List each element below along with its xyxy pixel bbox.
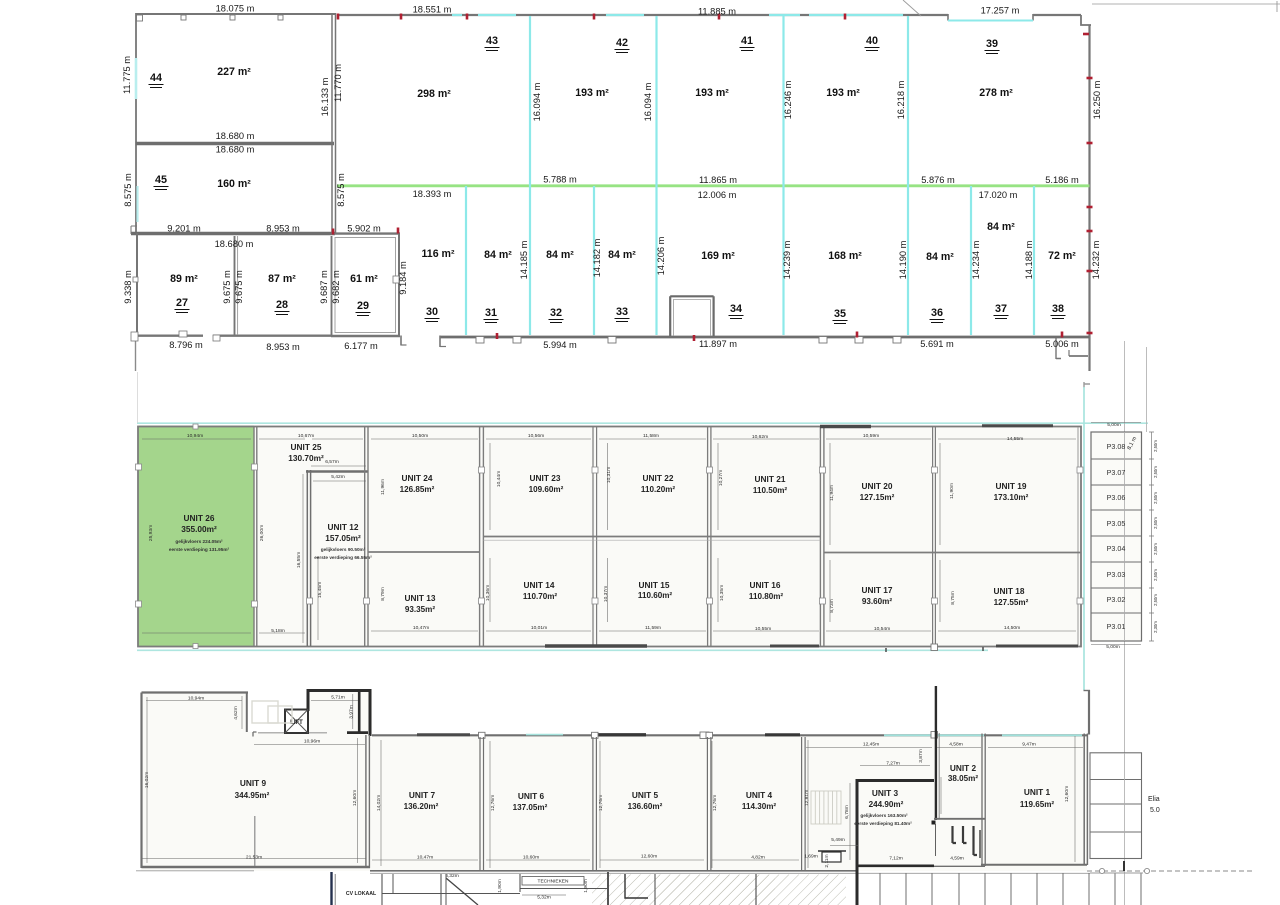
- svg-text:CV LOKAAL: CV LOKAAL: [346, 891, 377, 897]
- svg-text:29: 29: [357, 300, 369, 312]
- svg-text:10,35m: 10,35m: [719, 585, 725, 601]
- svg-text:84 m²: 84 m²: [926, 251, 954, 263]
- svg-text:10,27m: 10,27m: [718, 470, 724, 486]
- svg-text:5.788 m: 5.788 m: [543, 175, 577, 185]
- svg-text:UNIT 5: UNIT 5: [632, 790, 659, 800]
- svg-text:8.796 m: 8.796 m: [169, 340, 203, 350]
- svg-text:P3.07: P3.07: [1107, 468, 1126, 477]
- svg-text:8,75m: 8,75m: [950, 591, 956, 605]
- svg-text:14.206 m: 14.206 m: [656, 236, 666, 275]
- svg-text:9.201 m: 9.201 m: [167, 224, 201, 234]
- svg-text:36: 36: [931, 307, 943, 319]
- svg-text:10,94m: 10,94m: [187, 433, 203, 439]
- svg-text:32: 32: [550, 307, 562, 319]
- svg-text:130.70m²: 130.70m²: [288, 453, 324, 463]
- svg-text:15,45m: 15,45m: [317, 582, 323, 598]
- svg-text:110.80m²: 110.80m²: [749, 592, 784, 601]
- svg-text:5.691 m: 5.691 m: [920, 339, 954, 349]
- svg-text:93.60m²: 93.60m²: [862, 597, 892, 606]
- svg-text:UNIT 12: UNIT 12: [328, 522, 359, 532]
- svg-text:31: 31: [485, 307, 497, 319]
- svg-text:25,93m: 25,93m: [148, 525, 154, 541]
- svg-text:UNIT 24: UNIT 24: [402, 473, 433, 483]
- svg-text:18.551 m: 18.551 m: [413, 5, 452, 15]
- svg-text:14.185 m: 14.185 m: [519, 240, 529, 279]
- svg-text:P3.06: P3.06: [1107, 493, 1126, 502]
- svg-text:5,49m: 5,49m: [831, 837, 845, 843]
- svg-text:173.10m²: 173.10m²: [994, 493, 1029, 502]
- svg-text:27: 27: [176, 297, 188, 309]
- svg-text:89 m²: 89 m²: [170, 273, 198, 285]
- svg-text:TECHNIEKEN: TECHNIEKEN: [538, 879, 569, 885]
- svg-text:UNIT 6: UNIT 6: [518, 791, 545, 801]
- svg-text:gelijkvloers 163.50m²: gelijkvloers 163.50m²: [860, 813, 908, 818]
- svg-text:12.006 m: 12.006 m: [698, 190, 737, 200]
- svg-text:8.953 m: 8.953 m: [266, 224, 300, 234]
- svg-text:8,79m: 8,79m: [380, 587, 386, 601]
- svg-text:193 m²: 193 m²: [695, 87, 729, 99]
- svg-text:18.075 m: 18.075 m: [216, 4, 255, 14]
- svg-text:41: 41: [741, 35, 753, 47]
- svg-text:16,55m: 16,55m: [296, 552, 302, 568]
- svg-text:244.90m²: 244.90m²: [869, 800, 904, 809]
- svg-text:10,47m: 10,47m: [413, 625, 429, 631]
- svg-text:1,69m: 1,69m: [804, 854, 818, 860]
- svg-text:9.682 m: 9.682 m: [331, 270, 341, 304]
- svg-text:84 m²: 84 m²: [608, 249, 636, 261]
- svg-text:4,62m: 4,62m: [233, 706, 239, 720]
- svg-text:38.05m²: 38.05m²: [948, 774, 978, 783]
- svg-text:12,60m: 12,60m: [1064, 786, 1070, 802]
- svg-text:11,90m: 11,90m: [949, 483, 955, 499]
- svg-text:355.00m²: 355.00m²: [181, 524, 217, 534]
- svg-text:11,59m: 11,59m: [645, 625, 661, 631]
- svg-text:11,96m: 11,96m: [380, 479, 386, 495]
- svg-text:3,97m: 3,97m: [349, 705, 355, 719]
- svg-text:5,71m: 5,71m: [331, 695, 345, 701]
- svg-text:11,58m: 11,58m: [643, 433, 659, 439]
- svg-text:eerste verdieping 131.95m²: eerste verdieping 131.95m²: [169, 547, 230, 552]
- svg-text:193 m²: 193 m²: [826, 87, 860, 99]
- svg-text:136.60m²: 136.60m²: [628, 802, 663, 811]
- svg-text:193 m²: 193 m²: [575, 87, 609, 99]
- svg-text:6,32m: 6,32m: [445, 873, 459, 879]
- svg-text:2,50m: 2,50m: [1153, 440, 1158, 452]
- svg-text:UNIT 13: UNIT 13: [405, 593, 436, 603]
- svg-text:84 m²: 84 m²: [484, 249, 512, 261]
- svg-text:9.675 m: 9.675 m: [222, 270, 232, 304]
- svg-text:110.20m²: 110.20m²: [641, 485, 676, 494]
- svg-text:2,50m: 2,50m: [1153, 543, 1158, 555]
- svg-text:10,36m: 10,36m: [485, 585, 491, 601]
- svg-text:14.239 m: 14.239 m: [782, 240, 792, 279]
- svg-text:2,50m: 2,50m: [1153, 492, 1158, 504]
- svg-text:UNIT 25: UNIT 25: [291, 442, 322, 452]
- svg-text:4,82m: 4,82m: [751, 855, 765, 861]
- svg-text:26,00m: 26,00m: [259, 525, 265, 541]
- svg-text:127.15m²: 127.15m²: [860, 493, 895, 502]
- svg-text:8.575 m: 8.575 m: [123, 173, 133, 207]
- svg-text:5,18m: 5,18m: [271, 628, 285, 634]
- svg-text:9,47m: 9,47m: [1022, 742, 1036, 748]
- svg-text:119.65m²: 119.65m²: [1020, 800, 1055, 809]
- svg-text:11.770 m: 11.770 m: [333, 64, 343, 102]
- svg-text:33: 33: [616, 306, 628, 318]
- svg-text:114.30m²: 114.30m²: [742, 802, 777, 811]
- svg-text:110.50m²: 110.50m²: [753, 486, 788, 495]
- svg-text:17.020 m: 17.020 m: [979, 190, 1018, 200]
- svg-text:72 m²: 72 m²: [1048, 250, 1076, 262]
- svg-text:11,94m: 11,94m: [829, 485, 835, 501]
- svg-text:UNIT 23: UNIT 23: [530, 473, 561, 483]
- svg-text:10,56m: 10,56m: [528, 433, 544, 439]
- svg-text:10,55m: 10,55m: [755, 626, 771, 632]
- svg-text:278 m²: 278 m²: [979, 87, 1013, 99]
- svg-text:7,12m: 7,12m: [889, 856, 903, 862]
- svg-text:39: 39: [986, 38, 998, 50]
- svg-text:11.775 m: 11.775 m: [122, 56, 132, 94]
- svg-text:10,44m: 10,44m: [496, 471, 502, 487]
- svg-text:P3.01: P3.01: [1107, 622, 1126, 631]
- svg-text:17.257 m: 17.257 m: [981, 6, 1020, 16]
- svg-text:28: 28: [276, 299, 288, 311]
- svg-text:160 m²: 160 m²: [217, 178, 251, 190]
- svg-text:UNIT 7: UNIT 7: [409, 790, 436, 800]
- svg-text:35: 35: [834, 308, 846, 320]
- svg-text:11.885 m: 11.885 m: [698, 7, 736, 17]
- svg-text:37: 37: [995, 303, 1007, 315]
- svg-text:18.393 m: 18.393 m: [413, 189, 452, 199]
- svg-text:87 m²: 87 m²: [268, 273, 296, 285]
- svg-text:11.897 m: 11.897 m: [699, 339, 737, 349]
- svg-text:10,59m: 10,59m: [863, 433, 879, 439]
- svg-text:44: 44: [150, 72, 162, 84]
- svg-text:16.246 m: 16.246 m: [783, 80, 793, 119]
- svg-text:UNIT 19: UNIT 19: [996, 481, 1027, 491]
- svg-text:5.0: 5.0: [1150, 807, 1160, 814]
- svg-text:84 m²: 84 m²: [546, 249, 574, 261]
- svg-text:227 m²: 227 m²: [217, 66, 251, 78]
- svg-text:30: 30: [426, 306, 438, 318]
- svg-text:21,53m: 21,53m: [246, 855, 262, 861]
- svg-text:5.902 m: 5.902 m: [347, 224, 381, 234]
- svg-text:2,50m: 2,50m: [1153, 466, 1158, 478]
- svg-text:P3.05: P3.05: [1107, 519, 1126, 528]
- svg-text:126.85m²: 126.85m²: [400, 485, 435, 494]
- svg-text:14.188 m: 14.188 m: [1024, 240, 1034, 279]
- svg-text:10,50m: 10,50m: [412, 433, 428, 439]
- svg-text:5.876 m: 5.876 m: [921, 175, 955, 185]
- svg-text:2,50m: 2,50m: [1153, 517, 1158, 529]
- svg-text:eerste verdieping 81.40m²: eerste verdieping 81.40m²: [854, 821, 912, 826]
- svg-text:168 m²: 168 m²: [828, 250, 862, 262]
- svg-text:93.35m²: 93.35m²: [405, 605, 435, 614]
- svg-text:UNIT 26: UNIT 26: [184, 513, 215, 523]
- svg-text:136.20m²: 136.20m²: [404, 802, 439, 811]
- svg-text:UNIT 18: UNIT 18: [994, 586, 1025, 596]
- svg-text:12,45m: 12,45m: [863, 742, 879, 748]
- svg-text:10,37m: 10,37m: [603, 586, 609, 602]
- svg-text:18.680 m: 18.680 m: [215, 239, 254, 249]
- svg-text:4,59m: 4,59m: [950, 856, 964, 862]
- svg-text:157.05m²: 157.05m²: [325, 533, 361, 543]
- svg-text:14.232 m: 14.232 m: [1091, 240, 1101, 279]
- svg-text:gelijkvloers 224.05m²: gelijkvloers 224.05m²: [175, 539, 223, 544]
- svg-text:10,62m: 10,62m: [752, 434, 768, 440]
- svg-text:14,55m: 14,55m: [1007, 436, 1023, 442]
- svg-text:4,58m: 4,58m: [949, 742, 963, 748]
- svg-text:2,30m: 2,30m: [1153, 621, 1158, 633]
- svg-text:18.680 m: 18.680 m: [216, 131, 255, 141]
- svg-text:2,50m: 2,50m: [1153, 569, 1158, 581]
- svg-text:UNIT 21: UNIT 21: [755, 474, 786, 484]
- svg-text:45: 45: [155, 174, 167, 186]
- svg-text:43: 43: [486, 35, 498, 47]
- svg-text:8,73m: 8,73m: [829, 599, 835, 613]
- svg-text:UNIT 17: UNIT 17: [862, 585, 893, 595]
- svg-text:169 m²: 169 m²: [701, 250, 735, 262]
- svg-text:UNIT 4: UNIT 4: [746, 790, 773, 800]
- svg-text:16.133 m: 16.133 m: [320, 77, 330, 116]
- svg-text:40: 40: [866, 35, 878, 47]
- svg-text:18.680 m: 18.680 m: [216, 145, 255, 155]
- svg-text:10,31m: 10,31m: [606, 467, 612, 483]
- svg-text:298 m²: 298 m²: [417, 88, 451, 100]
- svg-text:UNIT 2: UNIT 2: [950, 763, 977, 773]
- svg-text:16.094 m: 16.094 m: [643, 82, 653, 121]
- svg-text:9.675 m: 9.675 m: [234, 270, 244, 304]
- svg-text:12,81m: 12,81m: [804, 790, 810, 806]
- svg-text:eerste verdieping 66.55m²: eerste verdieping 66.55m²: [314, 555, 372, 560]
- svg-text:10,96m: 10,96m: [304, 739, 320, 745]
- svg-text:5,00m: 5,00m: [1106, 644, 1120, 650]
- svg-text:16.218 m: 16.218 m: [896, 80, 906, 119]
- svg-text:9.338 m: 9.338 m: [123, 270, 133, 304]
- svg-text:UNIT 15: UNIT 15: [639, 580, 670, 590]
- svg-text:3,87m: 3,87m: [918, 749, 924, 763]
- svg-text:11.865 m: 11.865 m: [699, 175, 737, 185]
- svg-text:P3.04: P3.04: [1107, 544, 1126, 553]
- svg-text:UNIT 3: UNIT 3: [872, 788, 899, 798]
- svg-text:110.70m²: 110.70m²: [523, 592, 558, 601]
- svg-text:1,90m: 1,90m: [497, 879, 503, 893]
- svg-text:10,47m: 10,47m: [417, 855, 433, 861]
- svg-text:P3.02: P3.02: [1107, 595, 1126, 604]
- svg-text:10,01m: 10,01m: [531, 625, 547, 631]
- svg-text:38: 38: [1052, 303, 1064, 315]
- svg-text:UNIT 16: UNIT 16: [750, 580, 781, 590]
- svg-text:34: 34: [730, 303, 742, 315]
- svg-text:5.186 m: 5.186 m: [1045, 175, 1079, 185]
- svg-text:10,60m: 10,60m: [523, 855, 539, 861]
- svg-text:UNIT 14: UNIT 14: [524, 580, 555, 590]
- svg-text:344.95m²: 344.95m²: [235, 791, 270, 800]
- svg-text:1,90m: 1,90m: [583, 879, 589, 893]
- svg-text:9.184 m: 9.184 m: [398, 261, 408, 295]
- svg-text:12,76m: 12,76m: [490, 795, 496, 811]
- svg-text:16.250 m: 16.250 m: [1092, 80, 1102, 119]
- svg-text:Elia: Elia: [1148, 796, 1160, 803]
- svg-text:10,67m: 10,67m: [298, 433, 314, 439]
- svg-text:gelijkvloers 90.50m²: gelijkvloers 90.50m²: [321, 547, 366, 552]
- svg-text:14.190 m: 14.190 m: [898, 240, 908, 279]
- svg-text:137.05m²: 137.05m²: [513, 803, 548, 812]
- svg-text:116 m²: 116 m²: [422, 248, 455, 260]
- svg-text:110.60m²: 110.60m²: [638, 591, 673, 600]
- svg-text:12,76m: 12,76m: [598, 795, 604, 811]
- svg-text:84 m²: 84 m²: [987, 221, 1015, 233]
- svg-text:6,78m: 6,78m: [844, 805, 850, 819]
- svg-text:6,57m: 6,57m: [325, 459, 339, 465]
- svg-text:5.994 m: 5.994 m: [543, 340, 577, 350]
- svg-text:6.177 m: 6.177 m: [344, 341, 378, 351]
- svg-text:5,00m: 5,00m: [1107, 422, 1121, 428]
- svg-text:UNIT 9: UNIT 9: [240, 778, 267, 788]
- svg-text:8.953 m: 8.953 m: [266, 342, 300, 352]
- svg-text:12,76m: 12,76m: [712, 795, 718, 811]
- svg-text:2,11m: 2,11m: [824, 854, 830, 867]
- svg-text:127.55m²: 127.55m²: [994, 598, 1029, 607]
- svg-text:UNIT 22: UNIT 22: [643, 473, 674, 483]
- svg-text:14,50m: 14,50m: [1004, 625, 1020, 631]
- svg-text:14.234 m: 14.234 m: [971, 240, 981, 279]
- svg-text:12,60m: 12,60m: [352, 790, 358, 806]
- svg-text:UNIT 1: UNIT 1: [1024, 787, 1051, 797]
- svg-text:12,60m: 12,60m: [641, 854, 657, 860]
- svg-text:5.006 m: 5.006 m: [1045, 339, 1079, 349]
- svg-text:5,42m: 5,42m: [331, 474, 345, 480]
- svg-text:16.094 m: 16.094 m: [532, 82, 542, 121]
- svg-text:P3.03: P3.03: [1107, 570, 1126, 579]
- svg-text:9.687 m: 9.687 m: [319, 270, 329, 304]
- svg-text:8.575 m: 8.575 m: [336, 173, 346, 207]
- svg-text:2,50m: 2,50m: [1153, 594, 1158, 606]
- svg-text:14.182 m: 14.182 m: [592, 238, 602, 277]
- svg-text:42: 42: [616, 37, 628, 49]
- svg-text:5,32m: 5,32m: [537, 895, 551, 901]
- svg-text:UNIT 20: UNIT 20: [862, 481, 893, 491]
- svg-text:109.60m²: 109.60m²: [529, 485, 564, 494]
- svg-text:61 m²: 61 m²: [350, 273, 378, 285]
- svg-text:10,54m: 10,54m: [874, 626, 890, 632]
- svg-text:P3.08: P3.08: [1107, 442, 1126, 451]
